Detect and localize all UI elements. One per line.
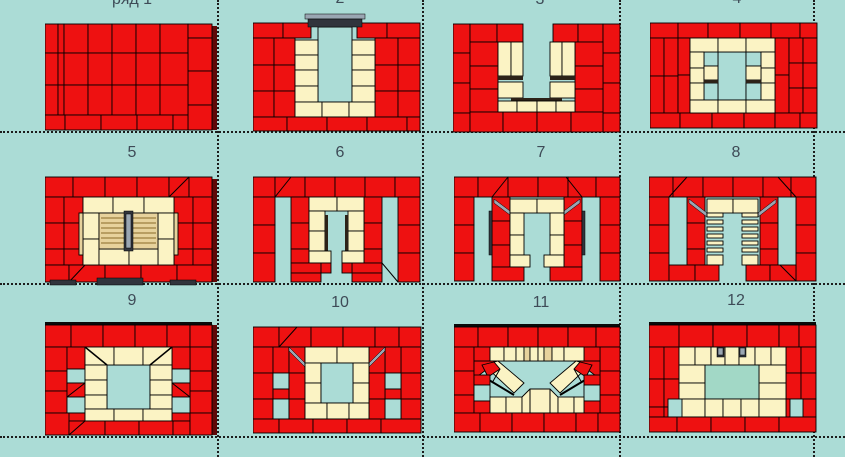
- course-label-6: 6: [253, 143, 427, 165]
- course-label-11: 11: [454, 293, 628, 315]
- stove-course-diagram-sheet: ряд 1 2 3 4 5 6 7 8 9 10 11 12: [0, 0, 845, 457]
- brick-course-diagram-6: [253, 165, 427, 289]
- course-label-4: 4: [650, 0, 824, 11]
- brick-course-diagram-4: [650, 11, 824, 135]
- course-label-8: 8: [649, 143, 823, 165]
- course-cell-8: 8: [649, 143, 823, 289]
- brick-course-diagram-2: [253, 11, 427, 135]
- brick-course-diagram-11: [454, 315, 628, 439]
- course-cell-10: 10: [253, 293, 427, 439]
- course-label-5: 5: [45, 143, 219, 165]
- course-cell-7: 7: [454, 143, 628, 289]
- brick-course-diagram-10: [253, 315, 427, 439]
- course-label-10: 10: [253, 293, 427, 315]
- brick-course-diagram-1: [45, 12, 219, 136]
- brick-course-diagram-8: [649, 165, 823, 289]
- course-cell-4: 4: [650, 0, 824, 135]
- brick-course-diagram-5: [45, 165, 219, 289]
- brick-course-diagram-9: [45, 313, 219, 437]
- course-label-7: 7: [454, 143, 628, 165]
- course-cell-12: 12: [649, 291, 823, 437]
- course-cell-9: 9: [45, 291, 219, 437]
- brick-course-diagram-7: [454, 165, 628, 289]
- brick-course-diagram-3: [453, 12, 627, 136]
- course-label-9: 9: [45, 291, 219, 313]
- course-cell-6: 6: [253, 143, 427, 289]
- course-label-12: 12: [649, 291, 823, 313]
- course-cell-5: 5: [45, 143, 219, 289]
- brick-course-diagram-12: [649, 313, 823, 437]
- course-cell-11: 11: [454, 293, 628, 439]
- course-cell-2: 2: [253, 0, 427, 135]
- course-label-2: 2: [253, 0, 427, 11]
- course-label-3: 3: [453, 0, 627, 12]
- course-cell-3: 3: [453, 0, 627, 136]
- course-label-1: ряд 1: [45, 0, 219, 12]
- course-cell-1: ряд 1: [45, 0, 219, 136]
